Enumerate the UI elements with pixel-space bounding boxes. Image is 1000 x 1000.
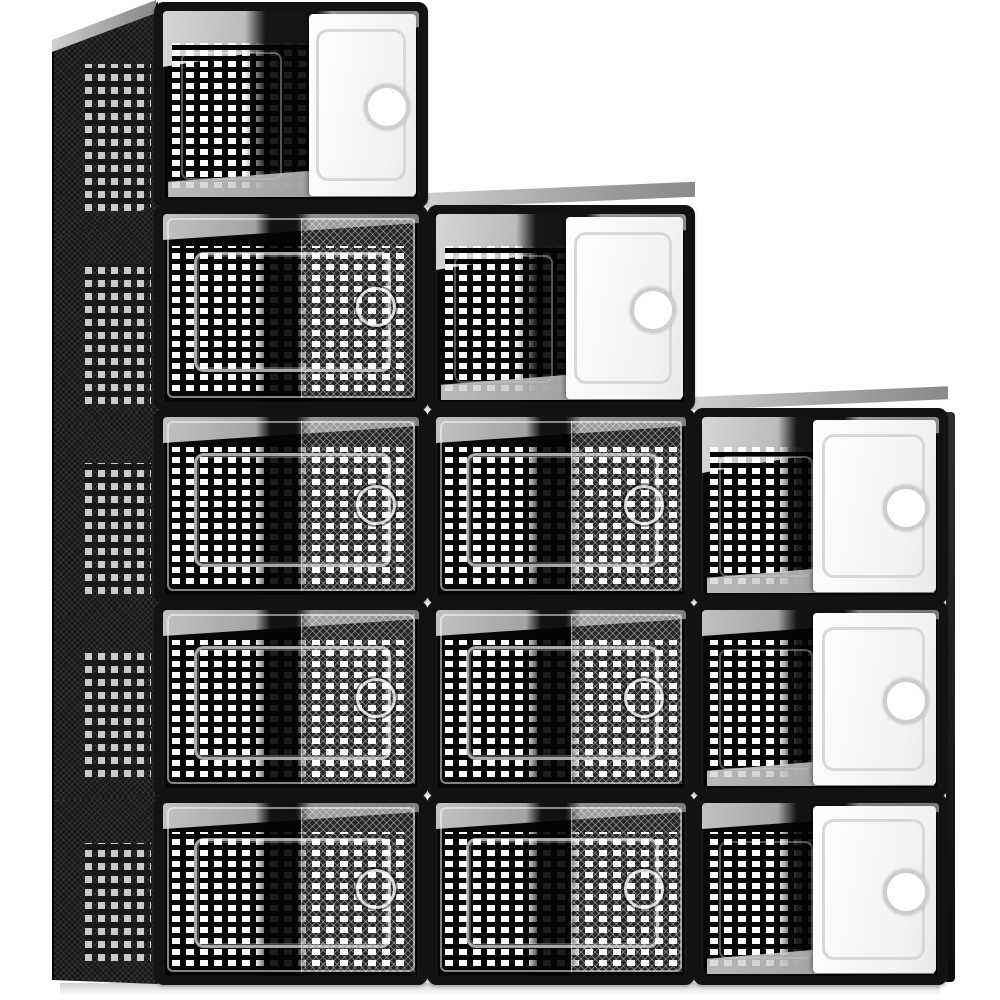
- shoe-box: [154, 205, 428, 411]
- door-finger-hole: [630, 287, 676, 333]
- door-finger-hole: [356, 287, 396, 327]
- box-side-panel: [52, 601, 158, 801]
- side-perforation-grid: [85, 264, 151, 404]
- side-perforation-grid: [85, 64, 151, 212]
- box-interior: [163, 417, 419, 595]
- door-finger-hole: [364, 84, 410, 130]
- open-door-panel: [813, 420, 936, 592]
- shoe-box: [427, 601, 695, 797]
- shoe-box: [427, 205, 695, 411]
- shoe-box: [693, 794, 948, 985]
- shoe-box: [427, 794, 695, 985]
- side-perforation-grid: [85, 653, 151, 777]
- box-side-panel: [52, 794, 158, 984]
- box-interior: [163, 610, 419, 788]
- box-interior: [702, 803, 939, 976]
- shoe-box: [693, 408, 948, 604]
- door-finger-hole: [883, 678, 929, 724]
- box-side-panel: [52, 408, 158, 619]
- box-top-face: [692, 386, 948, 410]
- side-perforation-grid: [85, 463, 151, 594]
- open-door-panel: [813, 613, 936, 785]
- box-interior: [163, 11, 419, 199]
- side-perforation-grid: [85, 843, 151, 961]
- box-interior: [436, 803, 686, 976]
- box-interior: [702, 417, 939, 595]
- shoe-box: [154, 794, 428, 985]
- shoe-box: [693, 601, 948, 797]
- box-interior: [436, 610, 686, 788]
- inner-tray-outline: [719, 649, 813, 770]
- shoe-box: [427, 408, 695, 604]
- open-door-panel: [813, 806, 936, 973]
- product-photo: [0, 0, 1000, 1000]
- box-interior: [163, 803, 419, 976]
- inner-tray-outline: [719, 456, 813, 577]
- door-finger-hole: [356, 869, 396, 909]
- open-door-panel: [566, 217, 683, 399]
- inner-tray-outline: [454, 255, 553, 383]
- door-finger-hole: [624, 869, 664, 909]
- box-interior: [436, 417, 686, 595]
- shoe-box: [154, 408, 428, 604]
- box-interior: [163, 214, 419, 402]
- open-door-panel: [309, 14, 416, 196]
- inner-tray-outline: [719, 841, 813, 959]
- box-interior: [702, 610, 939, 788]
- inner-tray-outline: [181, 52, 282, 180]
- box-interior: [436, 214, 686, 402]
- shoe-box: [154, 601, 428, 797]
- door-finger-hole: [883, 485, 929, 531]
- door-finger-hole: [883, 869, 929, 915]
- shoe-box: [154, 2, 428, 208]
- box-side-panel: [52, 205, 158, 431]
